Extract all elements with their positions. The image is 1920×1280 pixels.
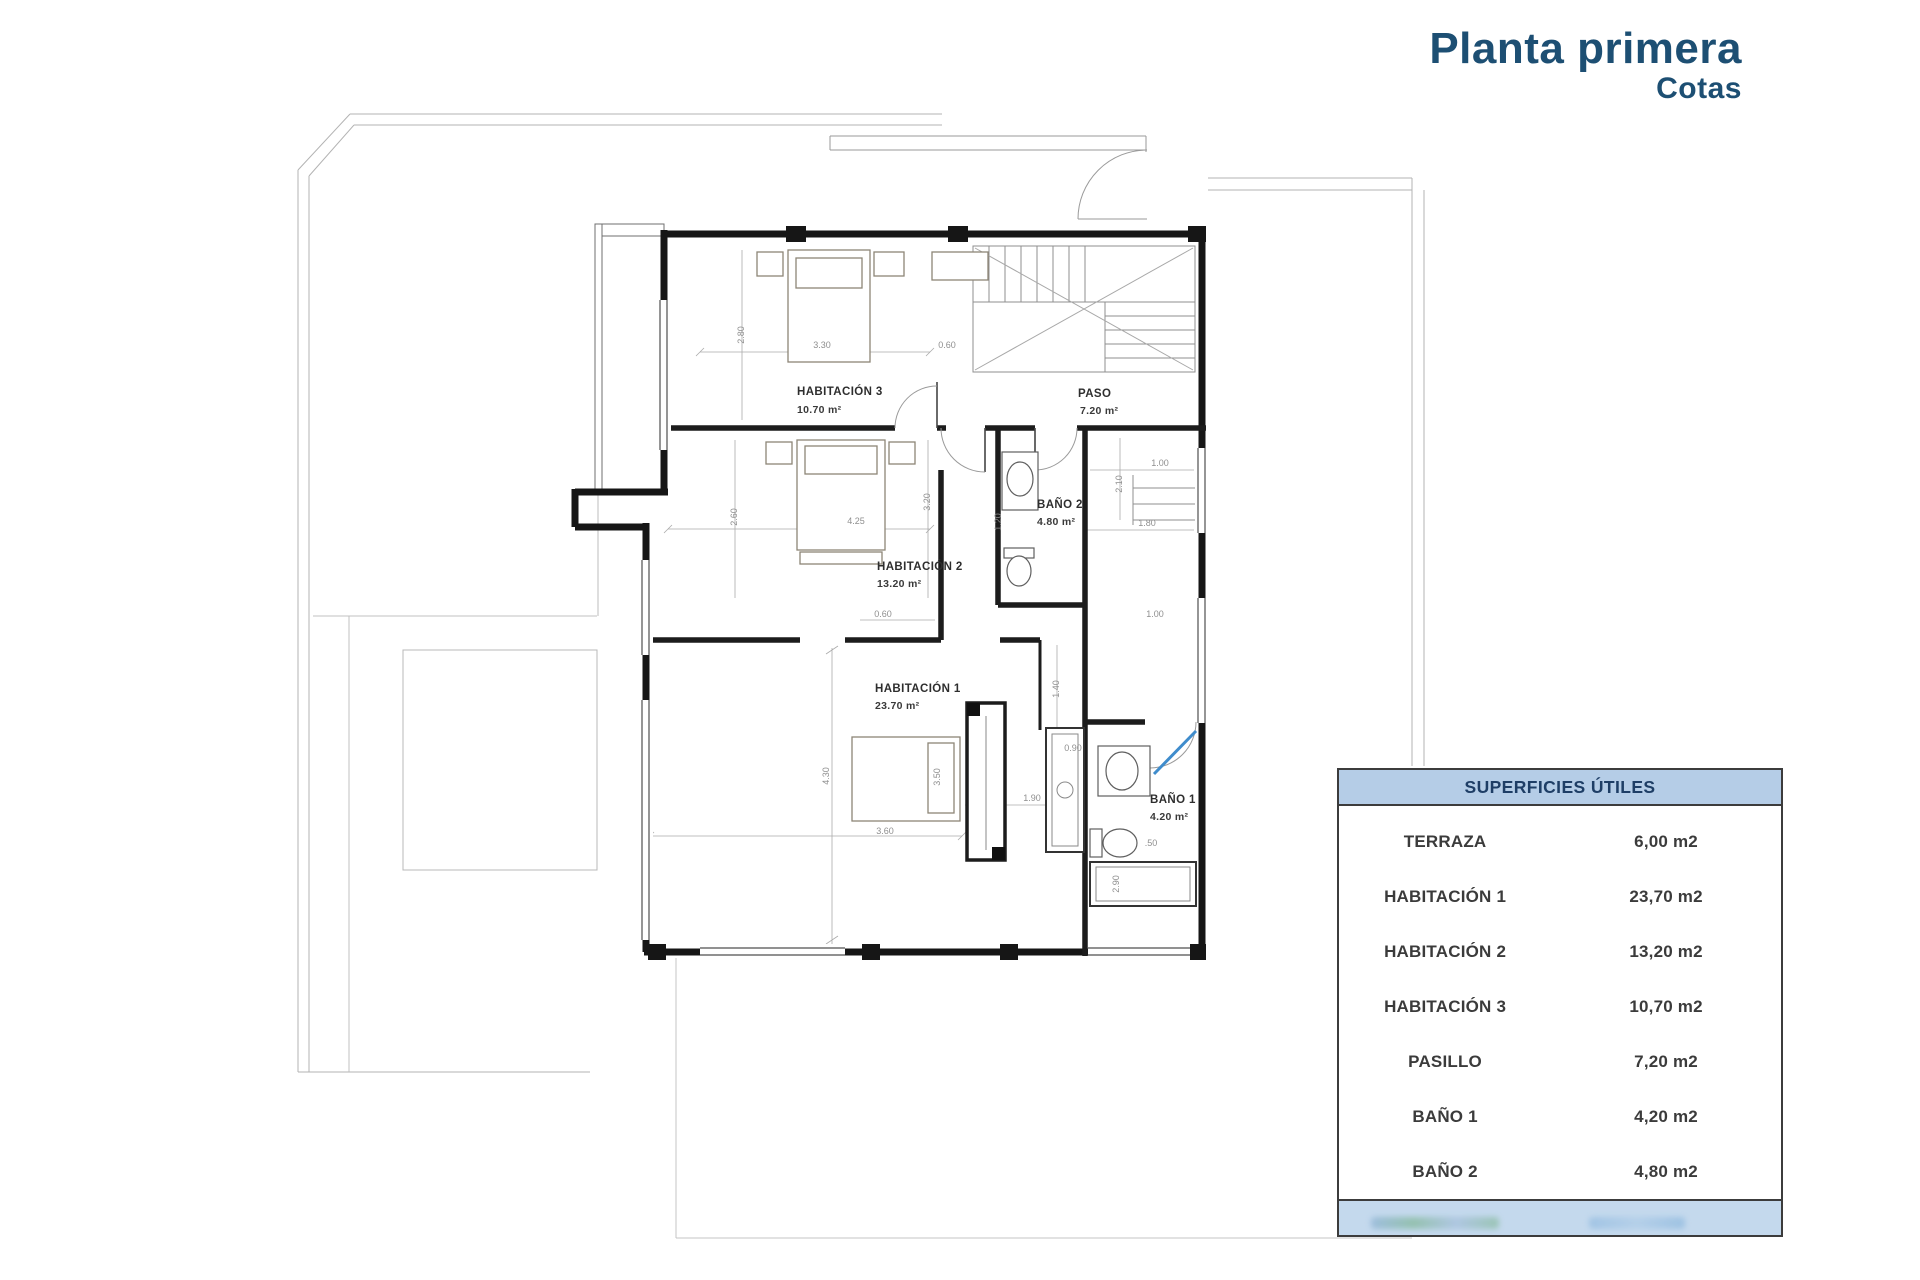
- room-area-bano2: 4.80 m²: [1037, 516, 1075, 528]
- pool-outline: [403, 650, 597, 870]
- dim-label: 1.00: [1151, 458, 1169, 468]
- room-label-bano2: BAÑO 2: [1037, 498, 1083, 511]
- table-row: PASILLO 7,20 m2: [1339, 1034, 1781, 1089]
- terrace-wall: [595, 224, 664, 616]
- row-label: HABITACIÓN 1: [1339, 887, 1551, 907]
- table-row: HABITACIÓN 2 13,20 m2: [1339, 924, 1781, 979]
- row-value: 4,20 m2: [1551, 1107, 1781, 1127]
- areas-table-body: TERRAZA 6,00 m2 HABITACIÓN 1 23,70 m2 HA…: [1339, 806, 1781, 1199]
- wardrobe-habitacion-1: [967, 703, 1005, 860]
- dim-label: 3.60: [876, 826, 894, 836]
- row-value: 23,70 m2: [1551, 887, 1781, 907]
- windows: [638, 300, 1209, 959]
- dim-label: 1.80: [1138, 518, 1156, 528]
- row-value: 4,80 m2: [1551, 1162, 1781, 1182]
- areas-table: SUPERFICIES ÚTILES TERRAZA 6,00 m2 HABIT…: [1337, 768, 1783, 1237]
- dim-label: 3.30: [813, 340, 831, 350]
- row-value: 6,00 m2: [1551, 832, 1781, 852]
- bed-habitacion-1: [852, 737, 960, 821]
- table-row: BAÑO 2 4,80 m2: [1339, 1144, 1781, 1199]
- roof-overhang: [830, 136, 1146, 152]
- room-label-bano1: BAÑO 1: [1150, 793, 1196, 806]
- row-label: BAÑO 2: [1339, 1162, 1551, 1182]
- bano2-fixtures: [1002, 452, 1038, 586]
- table-row: TERRAZA 6,00 m2: [1339, 814, 1781, 869]
- room-label-habitacion1: HABITACIÓN 1: [875, 682, 961, 695]
- bano1-fixtures: [1090, 746, 1196, 906]
- page-subtitle: Cotas: [1429, 72, 1742, 105]
- dim-label: 2.90: [1111, 875, 1121, 893]
- dim-label: 3.50: [932, 768, 942, 786]
- page-title: Planta primera: [1429, 26, 1742, 72]
- dim-label: 0.90: [1064, 743, 1082, 753]
- room-area-habitacion2: 13.20 m²: [877, 578, 922, 590]
- row-label: TERRAZA: [1339, 832, 1551, 852]
- dim-label: 2.80: [736, 326, 746, 344]
- row-value: 7,20 m2: [1551, 1052, 1781, 1072]
- row-value: 10,70 m2: [1551, 997, 1781, 1017]
- table-row: HABITACIÓN 1 23,70 m2: [1339, 869, 1781, 924]
- room-label-habitacion3: HABITACIÓN 3: [797, 385, 883, 398]
- table-row: HABITACIÓN 3 10,70 m2: [1339, 979, 1781, 1034]
- row-label: HABITACIÓN 3: [1339, 997, 1551, 1017]
- drawing-title-block: Planta primera Cotas: [1429, 26, 1742, 105]
- row-value: 13,20 m2: [1551, 942, 1781, 962]
- dim-label: 1.40: [1051, 680, 1061, 698]
- dim-label: 3.20: [922, 493, 932, 511]
- areas-table-header: SUPERFICIES ÚTILES: [1339, 770, 1781, 806]
- row-label: PASILLO: [1339, 1052, 1551, 1072]
- dim-label: 0.60: [874, 609, 892, 619]
- room-label-paso: PASO: [1078, 388, 1111, 400]
- bed-habitacion-2: [766, 440, 915, 564]
- dim-label: 1.90: [1023, 793, 1041, 803]
- dim-label: 4.25: [847, 516, 865, 526]
- room-area-habitacion3: 10.70 m²: [797, 404, 842, 416]
- room-area-bano1: 4.20 m²: [1150, 811, 1188, 823]
- room-area-paso: 7.20 m²: [1080, 405, 1118, 417]
- footer-redacted-value: [1589, 1217, 1685, 1229]
- dim-label: 2.60: [729, 508, 739, 526]
- row-label: BAÑO 1: [1339, 1107, 1551, 1127]
- footer-redacted-text: [1371, 1217, 1499, 1229]
- areas-table-footer: [1339, 1199, 1781, 1235]
- dim-label: 1.20: [993, 513, 1003, 531]
- room-label-habitacion2: HABITACIÓN 2: [877, 560, 963, 573]
- dim-label: 1.00: [1146, 609, 1164, 619]
- shower-screen-blue: [1154, 731, 1196, 774]
- dim-label: 4.30: [821, 767, 831, 785]
- table-row: BAÑO 1 4,20 m2: [1339, 1089, 1781, 1144]
- dim-label: 2.10: [1114, 475, 1124, 493]
- row-label: HABITACIÓN 2: [1339, 942, 1551, 962]
- dim-label: 0.60: [938, 340, 956, 350]
- room-area-habitacion1: 23.70 m²: [875, 700, 920, 712]
- terrace-door-arc: [1078, 150, 1147, 219]
- dim-label: .50: [1145, 838, 1158, 848]
